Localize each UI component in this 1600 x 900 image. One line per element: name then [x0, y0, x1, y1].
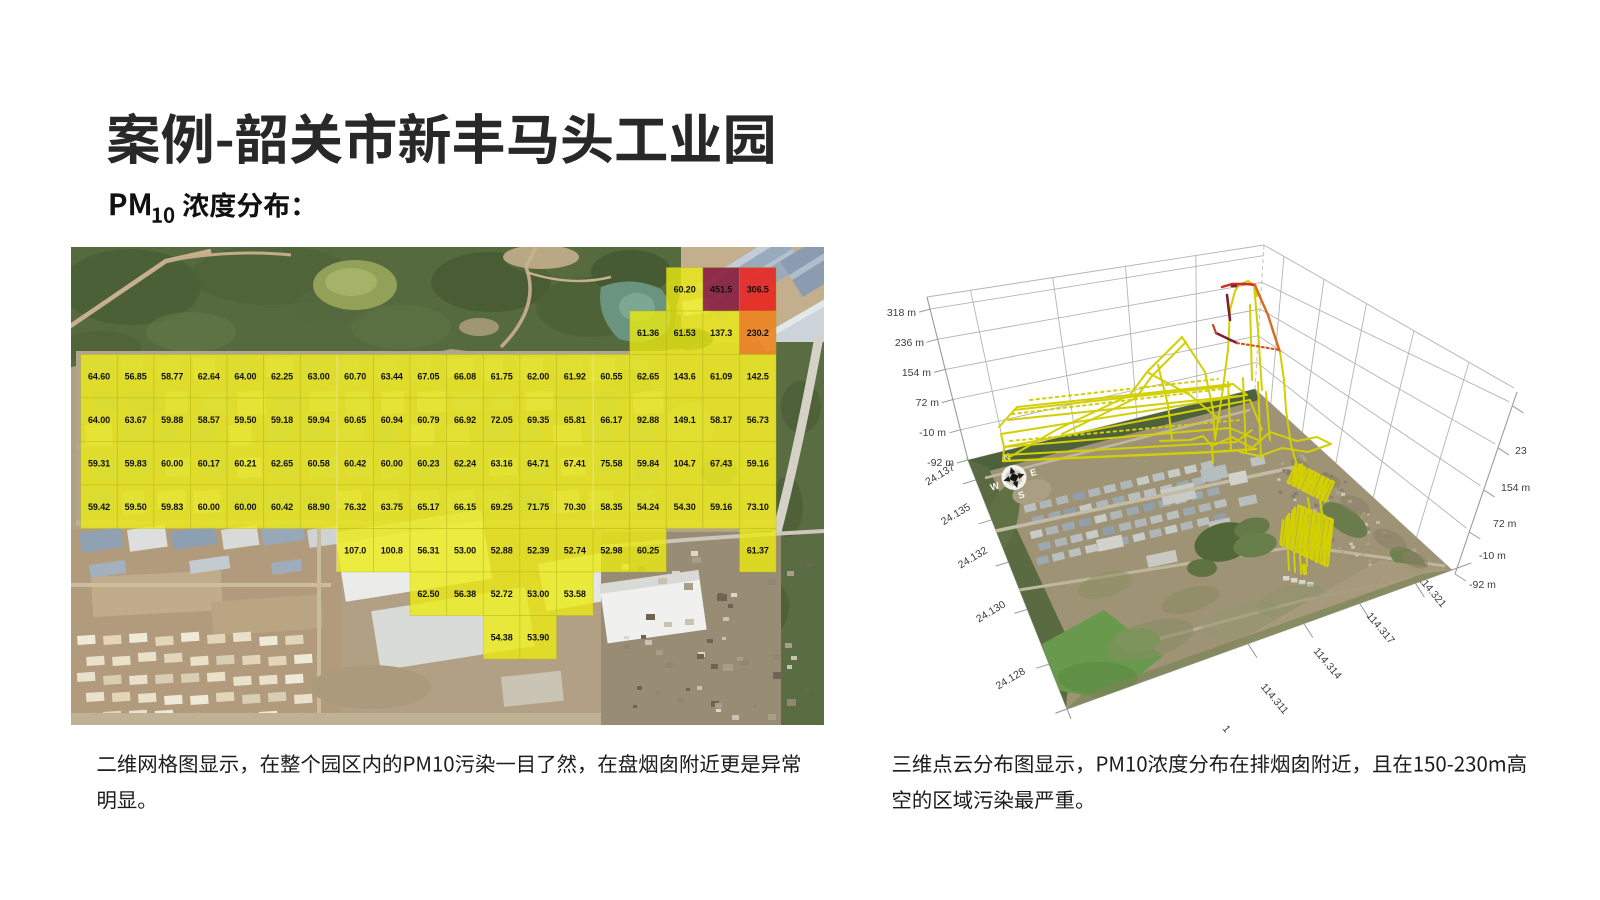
svg-text:154 m: 154 m: [1501, 482, 1530, 494]
svg-text:68.90: 68.90: [308, 502, 330, 512]
svg-text:60.70: 60.70: [344, 371, 366, 381]
svg-text:69.35: 69.35: [527, 415, 549, 425]
svg-text:60.00: 60.00: [381, 458, 403, 468]
svg-text:72.05: 72.05: [491, 415, 513, 425]
svg-text:114.317: 114.317: [1364, 610, 1397, 646]
svg-text:318 m: 318 m: [887, 307, 916, 319]
svg-text:64.60: 64.60: [88, 371, 110, 381]
svg-text:59.31: 59.31: [88, 458, 110, 468]
svg-text:59.50: 59.50: [234, 415, 256, 425]
svg-text:59.84: 59.84: [637, 458, 659, 468]
svg-text:104.7: 104.7: [674, 458, 696, 468]
svg-text:63.75: 63.75: [381, 502, 403, 512]
svg-text:73.10: 73.10: [747, 502, 769, 512]
svg-text:67.05: 67.05: [417, 371, 439, 381]
svg-text:52.39: 52.39: [527, 545, 549, 555]
svg-text:61.92: 61.92: [564, 371, 586, 381]
svg-text:149.1: 149.1: [674, 415, 696, 425]
svg-text:59.50: 59.50: [125, 502, 147, 512]
svg-text:60.58: 60.58: [308, 458, 330, 468]
svg-text:58.17: 58.17: [710, 415, 732, 425]
svg-text:65.17: 65.17: [417, 502, 439, 512]
svg-text:60.55: 60.55: [600, 371, 622, 381]
svg-text:56.38: 56.38: [454, 589, 476, 599]
svg-text:60.23: 60.23: [417, 458, 439, 468]
svg-text:142.5: 142.5: [747, 371, 769, 381]
svg-text:61.37: 61.37: [747, 545, 769, 555]
svg-text:59.16: 59.16: [747, 458, 769, 468]
svg-text:59.42: 59.42: [88, 502, 110, 512]
svg-text:64.00: 64.00: [88, 415, 110, 425]
svg-text:56.73: 56.73: [747, 415, 769, 425]
svg-text:64.71: 64.71: [527, 458, 549, 468]
svg-text:107.0: 107.0: [344, 545, 366, 555]
svg-text:60.79: 60.79: [417, 415, 439, 425]
svg-text:61.53: 61.53: [674, 328, 696, 338]
svg-text:114.314: 114.314: [1311, 645, 1344, 681]
svg-text:52.72: 52.72: [491, 589, 513, 599]
svg-text:56.85: 56.85: [125, 371, 147, 381]
svg-text:61.09: 61.09: [710, 371, 732, 381]
svg-text:-10 m: -10 m: [1479, 550, 1506, 562]
svg-text:63.44: 63.44: [381, 371, 403, 381]
svg-text:66.17: 66.17: [600, 415, 622, 425]
svg-text:71.75: 71.75: [527, 502, 549, 512]
svg-text:52.74: 52.74: [564, 545, 586, 555]
svg-text:1: 1: [1220, 723, 1233, 735]
svg-text:53.00: 53.00: [527, 589, 549, 599]
svg-text:52.98: 52.98: [600, 545, 622, 555]
svg-text:63.67: 63.67: [125, 415, 147, 425]
svg-text:24.135: 24.135: [939, 501, 973, 528]
svg-text:69.25: 69.25: [491, 502, 513, 512]
svg-text:451.5: 451.5: [710, 285, 732, 295]
svg-text:60.94: 60.94: [381, 415, 403, 425]
svg-text:56.31: 56.31: [417, 545, 439, 555]
svg-text:230.2: 230.2: [747, 328, 769, 338]
svg-text:66.08: 66.08: [454, 371, 476, 381]
svg-text:58.35: 58.35: [600, 502, 622, 512]
svg-text:-10 m: -10 m: [919, 427, 946, 439]
svg-text:62.24: 62.24: [454, 458, 476, 468]
svg-text:59.16: 59.16: [710, 502, 732, 512]
svg-text:23: 23: [1515, 445, 1527, 457]
svg-text:59.83: 59.83: [161, 502, 183, 512]
svg-text:63.00: 63.00: [308, 371, 330, 381]
svg-text:62.50: 62.50: [417, 589, 439, 599]
svg-text:62.00: 62.00: [527, 371, 549, 381]
svg-text:66.92: 66.92: [454, 415, 476, 425]
svg-text:54.30: 54.30: [674, 502, 696, 512]
svg-text:62.65: 62.65: [637, 371, 659, 381]
svg-text:54.24: 54.24: [637, 502, 659, 512]
svg-text:59.94: 59.94: [308, 415, 330, 425]
svg-text:64.00: 64.00: [234, 371, 256, 381]
svg-text:59.83: 59.83: [125, 458, 147, 468]
svg-text:61.75: 61.75: [491, 371, 513, 381]
svg-text:137.3: 137.3: [710, 328, 732, 338]
svg-text:60.00: 60.00: [234, 502, 256, 512]
svg-text:52.88: 52.88: [491, 545, 513, 555]
svg-text:53.00: 53.00: [454, 545, 476, 555]
svg-text:60.17: 60.17: [198, 458, 220, 468]
svg-text:54.38: 54.38: [491, 632, 513, 642]
svg-text:58.57: 58.57: [198, 415, 220, 425]
svg-text:24.130: 24.130: [974, 598, 1008, 625]
svg-text:154 m: 154 m: [902, 367, 931, 379]
svg-text:61.36: 61.36: [637, 328, 659, 338]
svg-text:59.18: 59.18: [271, 415, 293, 425]
svg-text:60.21: 60.21: [234, 458, 256, 468]
svg-text:66.15: 66.15: [454, 502, 476, 512]
svg-text:60.00: 60.00: [198, 502, 220, 512]
svg-text:62.64: 62.64: [198, 371, 220, 381]
svg-text:59.88: 59.88: [161, 415, 183, 425]
svg-text:100.8: 100.8: [381, 545, 403, 555]
svg-text:72 m: 72 m: [916, 397, 940, 409]
svg-text:306.5: 306.5: [747, 285, 769, 295]
svg-text:67.41: 67.41: [564, 458, 586, 468]
svg-text:62.25: 62.25: [271, 371, 293, 381]
svg-text:63.16: 63.16: [491, 458, 513, 468]
svg-text:60.65: 60.65: [344, 415, 366, 425]
svg-text:60.20: 60.20: [674, 285, 696, 295]
svg-text:143.6: 143.6: [674, 371, 696, 381]
svg-text:60.42: 60.42: [344, 458, 366, 468]
svg-text:76.32: 76.32: [344, 502, 366, 512]
svg-text:24.128: 24.128: [994, 665, 1028, 692]
svg-text:58.77: 58.77: [161, 371, 183, 381]
svg-text:53.58: 53.58: [564, 589, 586, 599]
svg-text:60.42: 60.42: [271, 502, 293, 512]
svg-text:92.88: 92.88: [637, 415, 659, 425]
svg-text:70.30: 70.30: [564, 502, 586, 512]
svg-text:-92 m: -92 m: [1469, 579, 1496, 591]
svg-text:65.81: 65.81: [564, 415, 586, 425]
svg-text:53.90: 53.90: [527, 632, 549, 642]
svg-text:67.43: 67.43: [710, 458, 732, 468]
svg-text:75.58: 75.58: [600, 458, 622, 468]
svg-text:114.311: 114.311: [1258, 681, 1291, 717]
svg-text:60.00: 60.00: [161, 458, 183, 468]
svg-text:60.25: 60.25: [637, 545, 659, 555]
svg-text:24.132: 24.132: [956, 544, 990, 571]
svg-text:236 m: 236 m: [895, 337, 924, 349]
svg-text:62.65: 62.65: [271, 458, 293, 468]
svg-text:72 m: 72 m: [1493, 518, 1517, 530]
